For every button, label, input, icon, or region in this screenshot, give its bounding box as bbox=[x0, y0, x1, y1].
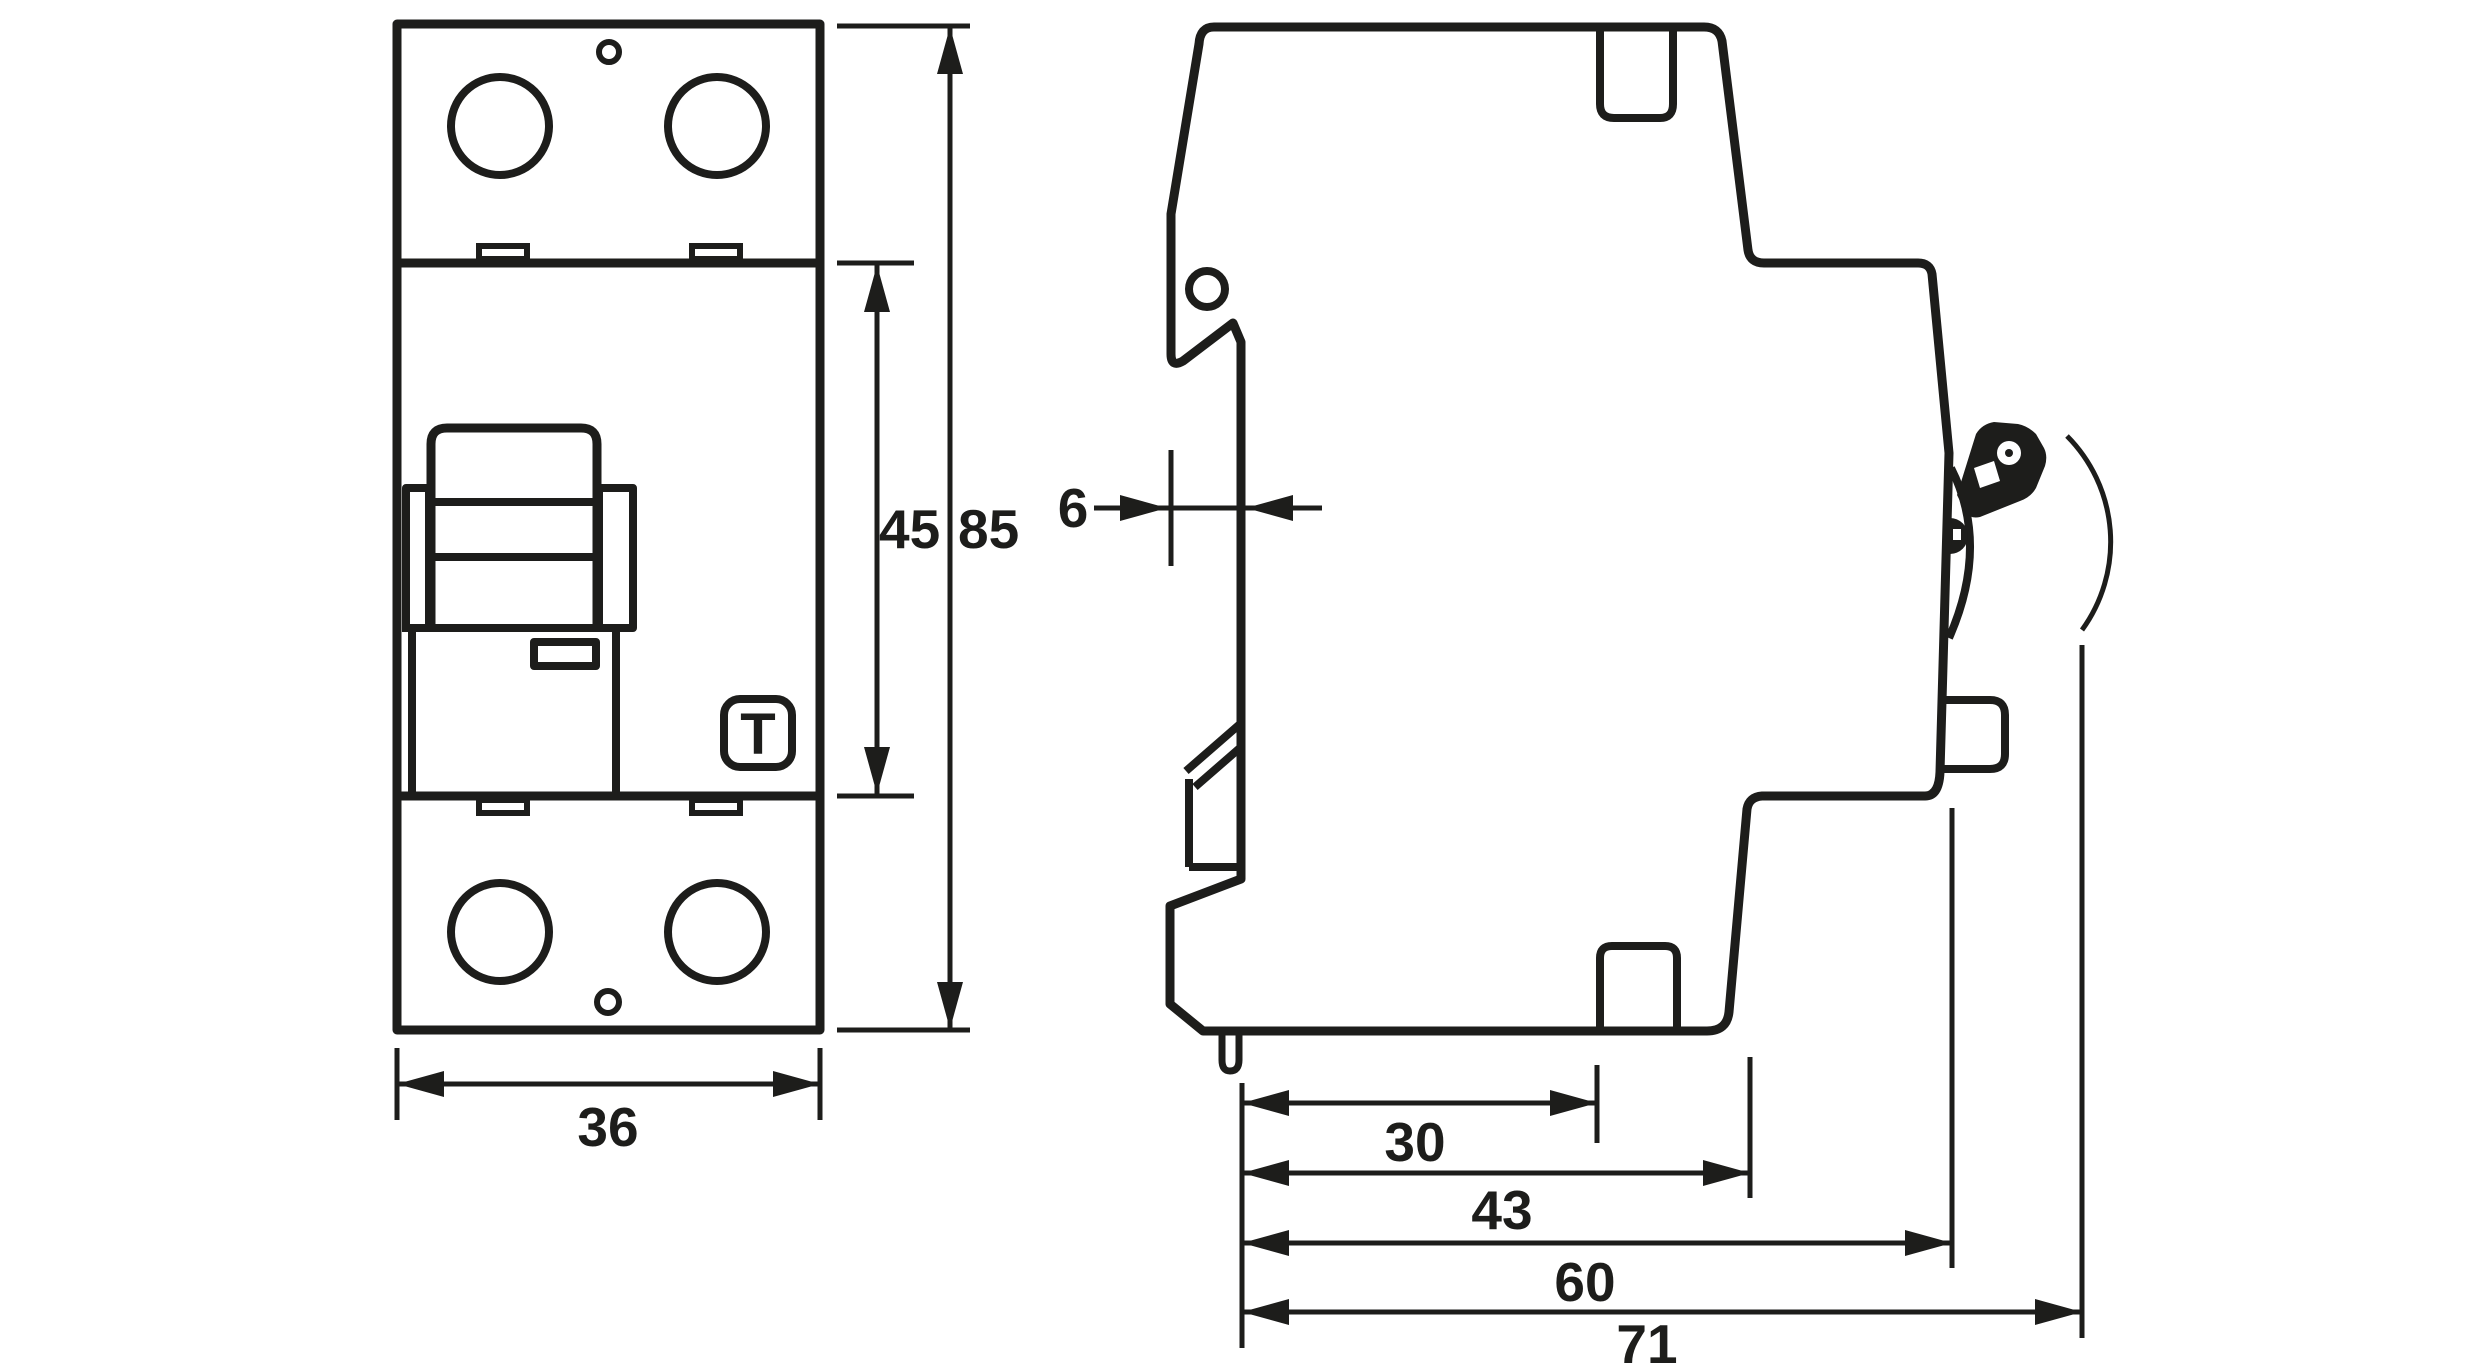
dim-label-6: 6 bbox=[1058, 477, 1089, 539]
dim-front-body-height: 45 bbox=[837, 263, 940, 796]
test-button-label: T bbox=[740, 702, 775, 767]
toggle-rocker bbox=[431, 428, 597, 628]
arrowhead bbox=[2035, 1299, 2082, 1325]
arrowhead bbox=[937, 982, 963, 1029]
technical-drawing-page: T bbox=[0, 0, 2480, 1372]
dim-label-60: 60 bbox=[1554, 1251, 1615, 1313]
arrowhead bbox=[1120, 495, 1167, 521]
arrowhead bbox=[1246, 495, 1293, 521]
terminal-screw-hole bbox=[668, 883, 766, 981]
dim-label-43: 43 bbox=[1471, 1179, 1532, 1241]
arrowhead bbox=[1703, 1160, 1750, 1186]
dimension-drawing: T bbox=[0, 0, 2480, 1372]
top-separator-tab bbox=[692, 246, 740, 259]
dim-label-45: 45 bbox=[879, 498, 940, 560]
lever-swing-arc bbox=[2067, 436, 2111, 630]
side-view bbox=[1170, 27, 2111, 1071]
front-view: T bbox=[397, 24, 820, 1030]
arrowhead bbox=[773, 1071, 820, 1097]
top-screw-pocket bbox=[1600, 31, 1673, 118]
dim-side-depth-30: 30 bbox=[1242, 1065, 1597, 1173]
small-hole bbox=[597, 991, 619, 1013]
bottom-separator-tab bbox=[692, 800, 740, 813]
dim-side-rail-recess: 6 bbox=[1058, 450, 1322, 566]
dim-label-85: 85 bbox=[958, 498, 1019, 560]
arrowhead bbox=[1242, 1299, 1289, 1325]
arrowhead bbox=[1242, 1230, 1289, 1256]
clip-hole bbox=[1189, 271, 1225, 307]
terminal-screw-hole bbox=[668, 77, 766, 175]
bottom-terminal-tab bbox=[1944, 700, 2005, 769]
switch-cradle-right bbox=[599, 488, 633, 628]
switch-cradle-left bbox=[406, 488, 429, 628]
terminal-screw-hole bbox=[451, 77, 549, 175]
dim-side-depth-60: 60 bbox=[1242, 808, 1952, 1313]
small-hole bbox=[599, 42, 619, 62]
lever-stop-notch bbox=[1953, 529, 1961, 540]
clip-release-pin bbox=[1222, 1031, 1239, 1071]
dim-label-30: 30 bbox=[1384, 1111, 1445, 1173]
toggle-lever-side bbox=[1957, 422, 2046, 518]
arrowhead bbox=[864, 265, 890, 312]
front-housing-outline bbox=[397, 24, 820, 1030]
terminal-screw-hole bbox=[451, 883, 549, 981]
arrowhead bbox=[1242, 1160, 1289, 1186]
dim-side-total-depth: 71 bbox=[1242, 645, 2082, 1372]
arrowhead bbox=[1242, 1090, 1289, 1116]
dim-label-71: 71 bbox=[1616, 1313, 1677, 1372]
marking-window bbox=[534, 642, 596, 666]
arrowhead bbox=[1905, 1230, 1952, 1256]
arrowhead bbox=[1550, 1090, 1597, 1116]
dim-side-depth-43: 43 bbox=[1242, 1057, 1750, 1241]
bottom-separator-tab bbox=[479, 800, 527, 813]
arrowhead bbox=[937, 27, 963, 74]
arrowhead bbox=[397, 1071, 444, 1097]
dim-front-width: 36 bbox=[397, 1048, 820, 1158]
bottom-foot-tab bbox=[1600, 946, 1677, 1031]
din-clip-spring bbox=[1186, 724, 1240, 771]
dim-label-36: 36 bbox=[577, 1096, 638, 1158]
side-housing-outline bbox=[1170, 27, 1949, 1031]
toggle-lever-hole-center bbox=[2005, 449, 2013, 457]
top-separator-tab bbox=[479, 246, 527, 259]
arrowhead bbox=[864, 747, 890, 794]
